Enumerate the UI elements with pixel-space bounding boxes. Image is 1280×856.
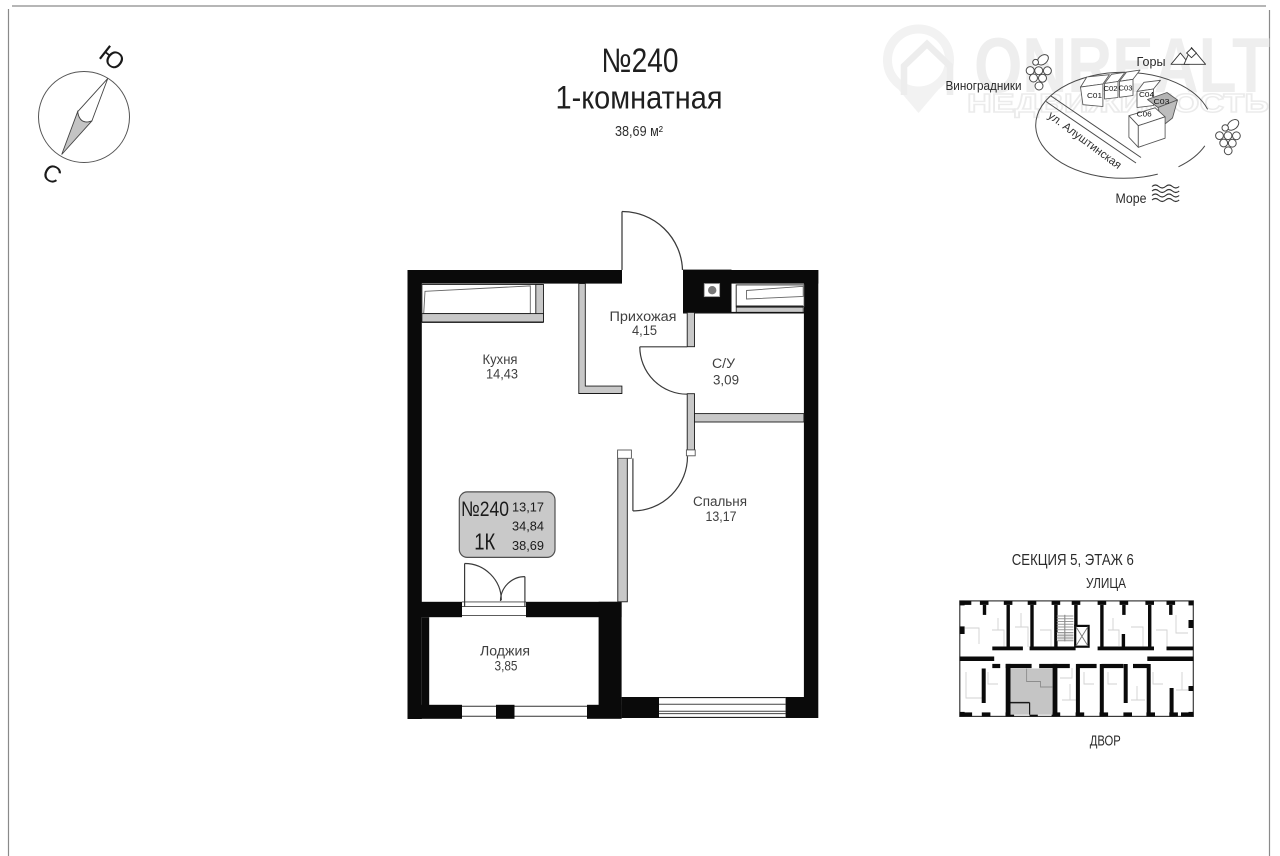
svg-text:С/У: С/У (712, 356, 735, 371)
svg-text:1К: 1К (474, 529, 495, 555)
svg-text:Лоджия: Лоджия (480, 644, 530, 659)
svg-text:3,09: 3,09 (713, 373, 739, 388)
svg-text:1-комнатная: 1-комнатная (556, 80, 723, 116)
svg-text:38,69 м²: 38,69 м² (615, 124, 663, 140)
svg-text:УЛИЦА: УЛИЦА (1086, 576, 1126, 592)
svg-text:№240: №240 (461, 498, 509, 521)
svg-text:С04: С04 (1139, 92, 1154, 99)
svg-text:Спальня: Спальня (693, 494, 747, 509)
svg-text:Прихожая: Прихожая (610, 309, 677, 324)
svg-text:С02: С02 (1104, 86, 1118, 93)
svg-text:14,43: 14,43 (486, 367, 518, 382)
svg-text:34,84: 34,84 (512, 519, 544, 534)
svg-text:С06: С06 (1137, 111, 1152, 118)
svg-text:№240: №240 (602, 42, 679, 80)
svg-text:38,69: 38,69 (512, 538, 544, 553)
svg-text:Горы: Горы (1137, 54, 1166, 69)
svg-text:ДВОР: ДВОР (1090, 734, 1121, 750)
svg-text:4,15: 4,15 (632, 323, 657, 338)
svg-text:С03: С03 (1119, 86, 1133, 93)
svg-text:Виноградники: Виноградники (946, 78, 1022, 93)
svg-text:13,17: 13,17 (512, 500, 544, 515)
svg-text:СЕКЦИЯ 5, ЭТАЖ 6: СЕКЦИЯ 5, ЭТАЖ 6 (1012, 552, 1134, 569)
svg-text:3,85: 3,85 (495, 659, 518, 674)
svg-text:Кухня: Кухня (483, 352, 518, 367)
svg-text:С01: С01 (1087, 93, 1102, 100)
svg-text:Море: Море (1116, 191, 1147, 206)
svg-text:С03: С03 (1154, 97, 1170, 106)
svg-text:13,17: 13,17 (706, 509, 737, 524)
